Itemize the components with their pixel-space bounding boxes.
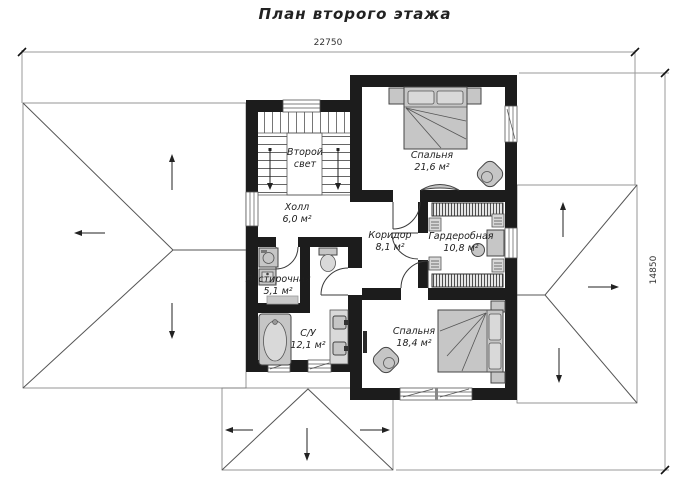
room-label-bedroom-bottom: Спальня 18,4 м² (393, 326, 435, 351)
room-label-laundry: Постирочная 5,1 м² (245, 274, 310, 299)
roof-porch (222, 388, 393, 470)
window-hall-left (246, 192, 258, 226)
room-label-bedroom-top: Спальня 21,6 м² (411, 150, 453, 175)
window-bathroom-2 (308, 360, 331, 372)
window-staircase-top (283, 100, 320, 112)
roof-right (517, 185, 637, 403)
roof-slope-arrow (74, 154, 175, 339)
roof-left (23, 103, 246, 388)
floor-plan-page: План второго этажа 22750 14850 Второй св… (0, 0, 692, 502)
room-label-bathroom: С/У 12,1 м² (290, 328, 325, 353)
vanity-double-sink (330, 310, 348, 364)
room-label-wardrobe: Гардеробная 10,8 м² (428, 231, 493, 256)
window-wardrobe-right (505, 228, 517, 258)
room-label-corridor: Коридор 8,1 м² (368, 230, 411, 255)
bed-double-bottom (438, 301, 505, 383)
room-label-hall: Холл 6,0 м² (282, 202, 311, 227)
roof-slope-arrow (556, 202, 619, 383)
tv-wall-mounted (363, 331, 367, 353)
dimension-width-label: 22750 (314, 38, 343, 48)
window-bedroom-top-right (505, 106, 517, 142)
window-bedroom-bottom (400, 388, 472, 400)
bathtub (259, 314, 291, 365)
washing-machine (259, 248, 278, 267)
page-title: План второго этажа (259, 5, 452, 23)
toilet (319, 248, 337, 272)
floor-plan-canvas (0, 0, 692, 502)
room-label-second-light: Второй свет (281, 147, 329, 172)
dimension-height-label: 14850 (649, 250, 659, 290)
